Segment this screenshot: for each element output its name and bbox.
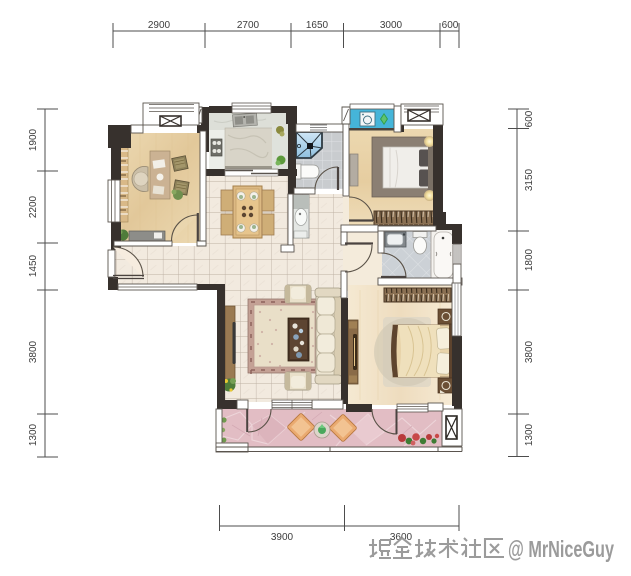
svg-text:3800: 3800 [28, 340, 39, 363]
svg-text:1450: 1450 [28, 254, 39, 277]
svg-text:1800: 1800 [524, 248, 535, 271]
svg-text:2200: 2200 [28, 195, 39, 218]
svg-text:1300: 1300 [28, 423, 39, 446]
svg-text:3000: 3000 [380, 20, 403, 31]
svg-text:600: 600 [524, 110, 535, 127]
svg-text:1650: 1650 [306, 20, 329, 31]
svg-text:3900: 3900 [271, 532, 294, 543]
svg-text:@ MrNiceGuy: @ MrNiceGuy [508, 536, 614, 562]
svg-text:2700: 2700 [237, 20, 260, 31]
svg-text:600: 600 [442, 20, 459, 31]
svg-text:2900: 2900 [148, 20, 171, 31]
svg-text:1300: 1300 [524, 423, 535, 446]
svg-text:3800: 3800 [524, 340, 535, 363]
svg-text:1900: 1900 [28, 128, 39, 151]
svg-text:3150: 3150 [524, 168, 535, 191]
